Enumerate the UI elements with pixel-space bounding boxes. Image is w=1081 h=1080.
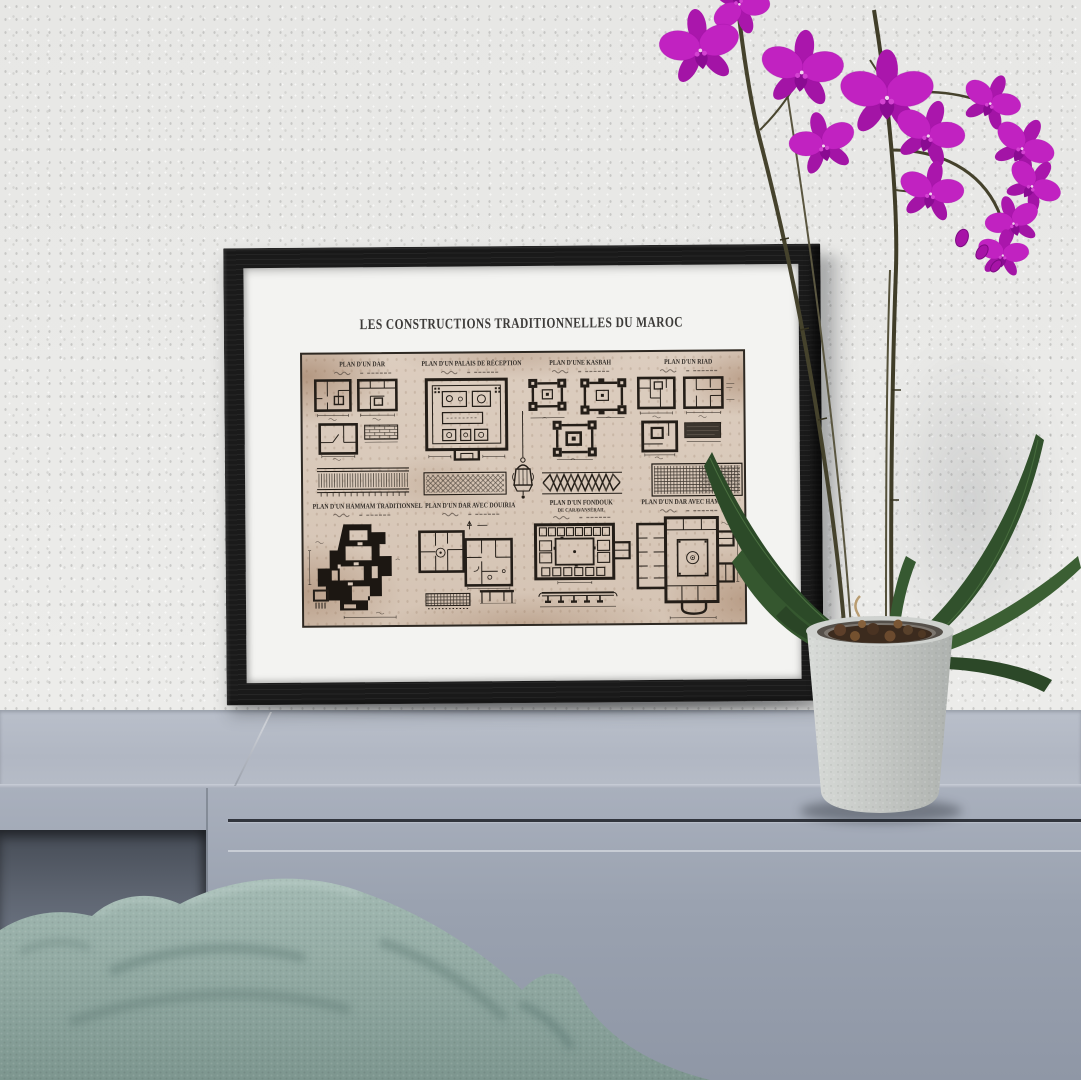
plan-dar: PLAN D'UN DAR <box>312 361 413 462</box>
plan-dar-caption-squiggle <box>330 369 394 377</box>
dar-douiria-floorplan-drawing <box>417 519 524 616</box>
fondouk-floorplan-drawing <box>527 522 636 615</box>
flower-pedicels <box>702 14 993 192</box>
plan-dar-douiria: PLAN D'UN DAR AVEC DOUIRIA <box>417 502 524 616</box>
plan-kasbah: PLAN D'UNE KASBAH <box>526 359 635 461</box>
plan-hammam-caption-squiggle <box>329 511 393 519</box>
plan-kasbah-title: PLAN D'UNE KASBAH <box>531 359 628 369</box>
dar-floorplan-drawing <box>312 378 413 462</box>
kasbah-floorplan-drawing <box>526 376 635 461</box>
orchid-plant <box>640 0 1081 830</box>
plan-fondouk: PLAN D'UN FONDOUK DE CARAVANSÉRAIL <box>527 499 636 615</box>
orchid-flowers <box>652 0 1075 280</box>
lantern-icon <box>509 411 538 501</box>
plan-palais: PLAN D'UN PALAIS DE RÉCEPTION <box>416 360 523 464</box>
plan-palais-title: PLAN D'UN PALAIS DE RÉCEPTION <box>421 360 516 370</box>
plan-dar-title: PLAN D'UN DAR <box>317 361 407 371</box>
plant-pot <box>806 616 954 813</box>
plan-dar-douiria-title: PLAN D'UN DAR AVEC DOUIRIA <box>423 502 518 512</box>
plan-hammam-title: PLAN D'UN HAMMAM TRADITIONNEL <box>313 502 410 512</box>
plan-hammam: PLAN D'UN HAMMAM TRADITIONNEL <box>307 503 416 621</box>
room-scene: LES CONSTRUCTIONS TRADITIONNELLES DU MAR… <box>0 0 1081 1080</box>
plan-fondouk-caption-squiggle <box>549 513 613 521</box>
stem-nodes <box>780 238 901 500</box>
plan-palais-caption-squiggle <box>437 368 501 376</box>
hammam-floorplan-drawing <box>307 520 416 621</box>
palais-floorplan-drawing <box>416 377 523 464</box>
plan-kasbah-caption-squiggle <box>548 367 612 375</box>
plan-fondouk-subtitle: DE CARAVANSÉRAIL <box>533 507 630 514</box>
ornament-band-fringe <box>315 465 411 500</box>
cushion <box>0 852 780 1080</box>
ornament-band-crosshatch <box>423 470 507 498</box>
plan-dar-douiria-caption-squiggle <box>438 510 502 518</box>
ornament-band-interlace <box>541 469 623 497</box>
